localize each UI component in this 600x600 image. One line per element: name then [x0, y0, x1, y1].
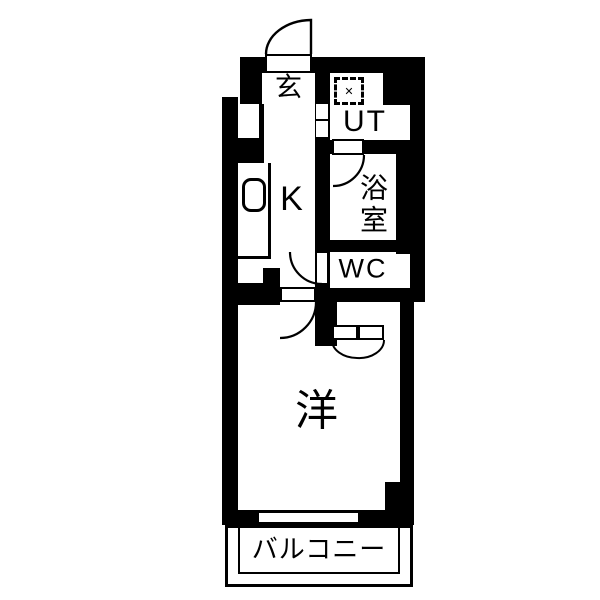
wall-right-upper	[410, 57, 425, 302]
room-door-arc	[280, 302, 316, 338]
label-utility: UT	[343, 107, 387, 137]
washing-machine-icon: ✕	[334, 77, 364, 105]
closet-door-arc-right	[357, 340, 384, 358]
wc-door-leaf	[315, 251, 329, 285]
bath-door-leaf	[332, 139, 364, 155]
closet-door-leaf-left	[332, 325, 358, 340]
wall-niche-edge	[259, 104, 264, 138]
floorplan-canvas: ✕ 玄 UT 浴室 WC K 洋 バルコニー	[0, 0, 600, 600]
room-door-leaf	[280, 287, 316, 302]
kitchen-sink	[242, 178, 266, 212]
washing-machine-cross: ✕	[344, 85, 353, 98]
label-bath: 浴室	[358, 173, 386, 237]
label-genkan: 玄	[275, 75, 303, 102]
label-toilet: WC	[339, 256, 388, 283]
entrance-door-leaf	[265, 54, 312, 73]
label-main-room: 洋	[295, 391, 339, 434]
wall-room-top-left-b	[263, 268, 280, 305]
wall-wc-bottom	[315, 288, 425, 302]
wall-vent-slot-1	[316, 104, 328, 119]
wall-kitchen-block	[238, 138, 264, 163]
wall-room-top-left-a	[238, 283, 263, 305]
label-kitchen: K	[280, 182, 304, 216]
balcony-window	[257, 511, 360, 524]
wall-pillar	[385, 482, 400, 512]
wall-left	[222, 97, 238, 525]
closet-door-leaf-right	[358, 325, 384, 340]
label-balcony: バルコニー	[252, 536, 386, 562]
wall-vent-slot-2	[316, 121, 328, 137]
entrance-door-arc	[266, 20, 311, 54]
wall-upper-left-block	[240, 73, 262, 104]
wall-right-lower	[400, 302, 414, 525]
